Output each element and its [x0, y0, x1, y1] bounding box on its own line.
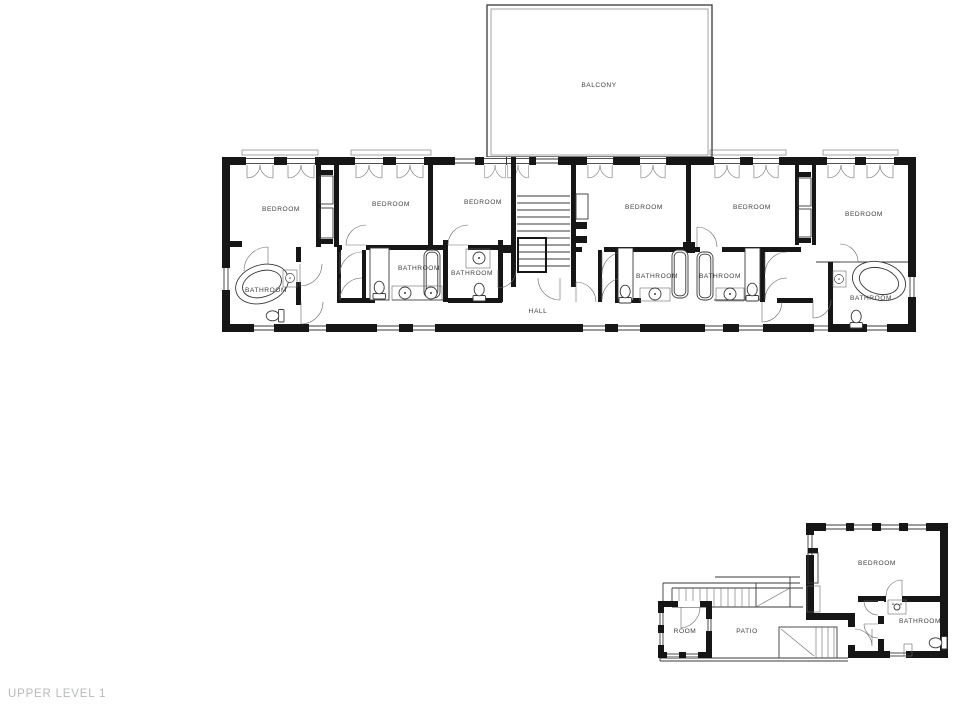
room-label-bathroom-1: BATHROOM: [245, 287, 287, 294]
room-label-hall: HALL: [529, 308, 548, 315]
sink-icon: [724, 288, 736, 300]
sink-icon: [835, 275, 844, 284]
exterior-walls: [222, 157, 916, 332]
toilet-icon: [473, 283, 486, 301]
stairs-lower: [779, 627, 837, 658]
sink-icon: [425, 287, 437, 299]
toilet-icon: [373, 281, 386, 299]
floor-plan-canvas: BALCONY: [0, 0, 957, 712]
room-label-bathroom-2: BATHROOM: [398, 265, 440, 272]
room-label-bathroom-6: BATHROOM: [850, 295, 892, 302]
annex: BEDROOM BATHROOM ROOM PATIO: [658, 523, 948, 661]
interior-walls: [226, 157, 908, 332]
toilet-icon: [929, 637, 947, 650]
toilet-icon: [850, 310, 863, 328]
toilet-icon: [619, 285, 632, 303]
staircase-main: [517, 196, 570, 272]
bathroom-fixtures: [230, 248, 910, 328]
room-label-bedroom-5: BEDROOM: [733, 204, 771, 211]
balcony-label: BALCONY: [581, 82, 616, 89]
main-building: BEDROOM BEDROOM BEDROOM BEDROOM BEDROOM …: [222, 150, 916, 332]
room-label-bedroom-6: BEDROOM: [845, 211, 883, 218]
room-label-bedroom-3: BEDROOM: [464, 199, 502, 206]
sink-icon: [399, 287, 411, 299]
room-label-bathroom-4: BATHROOM: [636, 273, 678, 280]
sink-icon: [286, 274, 295, 283]
annex-label-bedroom: BEDROOM: [858, 560, 896, 567]
balcony: BALCONY: [487, 5, 712, 157]
sink-icon: [649, 288, 661, 300]
toilet-icon: [266, 310, 284, 323]
annex-fixtures: [888, 600, 947, 656]
annex-label-bathroom: BATHROOM: [899, 618, 941, 625]
room-label-bedroom-4: BEDROOM: [625, 204, 663, 211]
annex-label-room: ROOM: [674, 628, 697, 635]
annex-label-patio: PATIO: [736, 628, 758, 635]
toilet-icon: [746, 283, 759, 301]
room-label-bathroom-5: BATHROOM: [699, 273, 741, 280]
sink-icon: [473, 252, 485, 264]
level-title: UPPER LEVEL 1: [8, 688, 106, 700]
floor-plan-page: BALCONY: [0, 0, 957, 712]
bathtub-icon: [230, 258, 293, 311]
room-label-bedroom-2: BEDROOM: [372, 201, 410, 208]
room-label-bathroom-3: BATHROOM: [451, 270, 493, 277]
room-label-bedroom-1: BEDROOM: [262, 206, 300, 213]
